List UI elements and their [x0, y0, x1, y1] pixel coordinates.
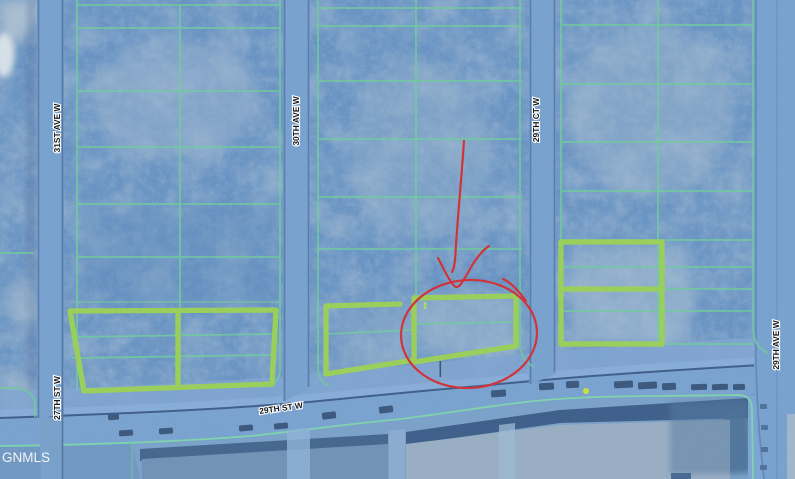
svg-text:29TH AVE W: 29TH AVE W	[771, 320, 781, 369]
svg-text:29TH CT W: 29TH CT W	[531, 98, 541, 142]
svg-text:30TH AVE W: 30TH AVE W	[291, 96, 301, 145]
svg-text:31ST AVE W: 31ST AVE W	[52, 103, 62, 152]
svg-text:27TH ST W: 27TH ST W	[52, 376, 62, 420]
svg-text:GNMLS: GNMLS	[2, 450, 50, 465]
